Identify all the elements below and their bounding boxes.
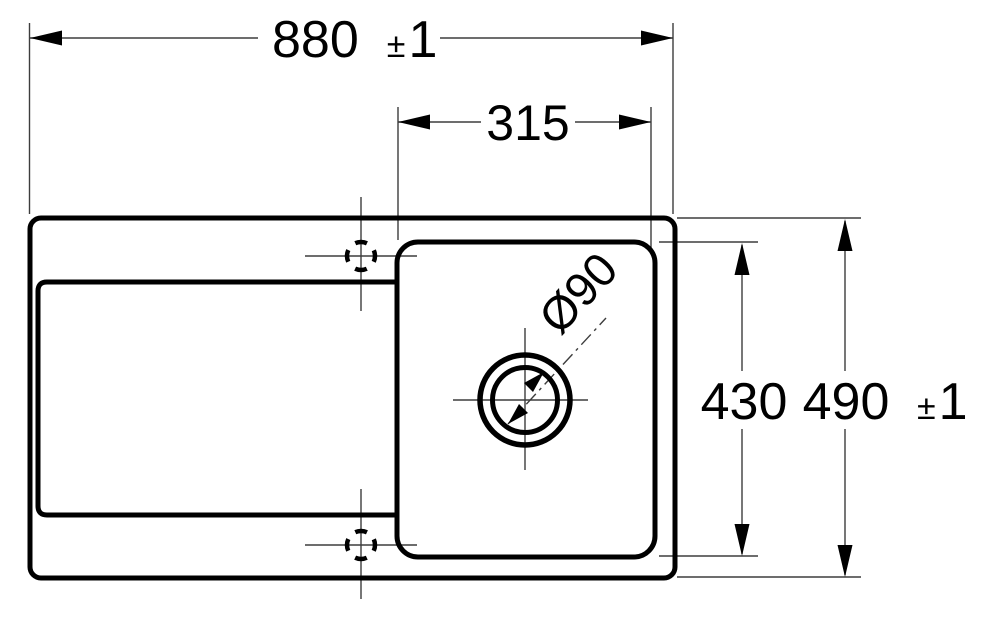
dimension-labels: 880±1 315 430 490 ±1 Ø90 — [272, 11, 968, 431]
arrowhead-430-top — [735, 243, 750, 275]
arrowhead-880-left — [30, 31, 62, 46]
dimension-lines — [30, 31, 853, 578]
arrowhead-880-right — [641, 31, 673, 46]
drawing-canvas: 880±1 315 430 490 ±1 Ø90 — [0, 0, 992, 619]
dim-label-880: 880±1 — [272, 11, 437, 69]
dim-label-drain-diameter: Ø90 — [528, 242, 627, 343]
dim-880-tol: 1 — [408, 11, 437, 69]
dim-490-tol: 1 — [939, 373, 968, 431]
dim-490-pm: ± — [917, 389, 936, 427]
arrowhead-430-bottom — [735, 524, 750, 556]
dim-label-490: 490 — [803, 373, 890, 431]
dim-880-pm: ± — [387, 27, 406, 65]
arrowhead-490-bottom — [838, 545, 853, 577]
drain-diameter-arrows — [508, 372, 544, 424]
dim-label-490-tolerance: ±1 — [917, 373, 968, 431]
drainboard-outline — [38, 282, 397, 515]
arrowhead-315-right — [619, 115, 651, 130]
dim-880-value: 880 — [272, 11, 359, 69]
arrowhead-315-left — [398, 115, 430, 130]
dim-label-315: 315 — [486, 95, 569, 151]
arrowhead-490-top — [838, 219, 853, 251]
sink-technical-drawing: 880±1 315 430 490 ±1 Ø90 — [0, 0, 992, 619]
dim-label-430: 430 — [701, 373, 788, 431]
